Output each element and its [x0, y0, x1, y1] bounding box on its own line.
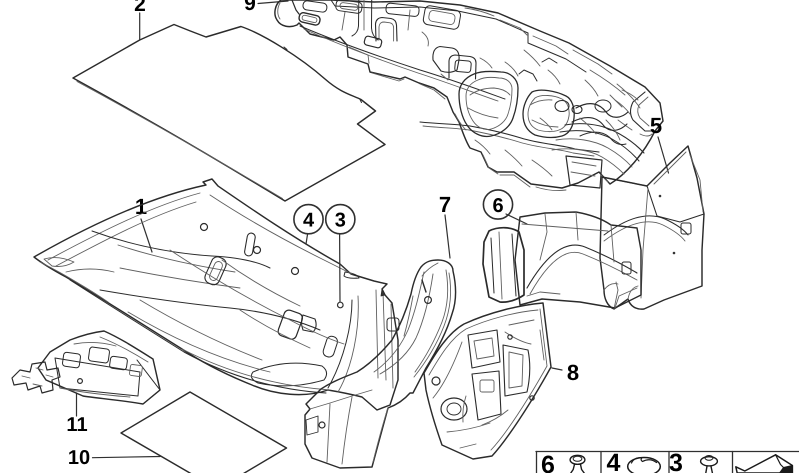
svg-text:3: 3	[669, 449, 683, 473]
svg-text:10: 10	[68, 447, 90, 469]
svg-text:11: 11	[66, 414, 87, 436]
svg-text:3: 3	[335, 210, 346, 232]
svg-text:7: 7	[439, 192, 451, 217]
svg-text:6: 6	[541, 451, 555, 473]
svg-text:6: 6	[492, 195, 503, 217]
svg-text:4: 4	[607, 449, 621, 473]
svg-text:8: 8	[567, 360, 579, 385]
svg-text:4: 4	[303, 210, 315, 232]
svg-text:9: 9	[244, 0, 256, 15]
svg-text:5: 5	[650, 113, 662, 138]
